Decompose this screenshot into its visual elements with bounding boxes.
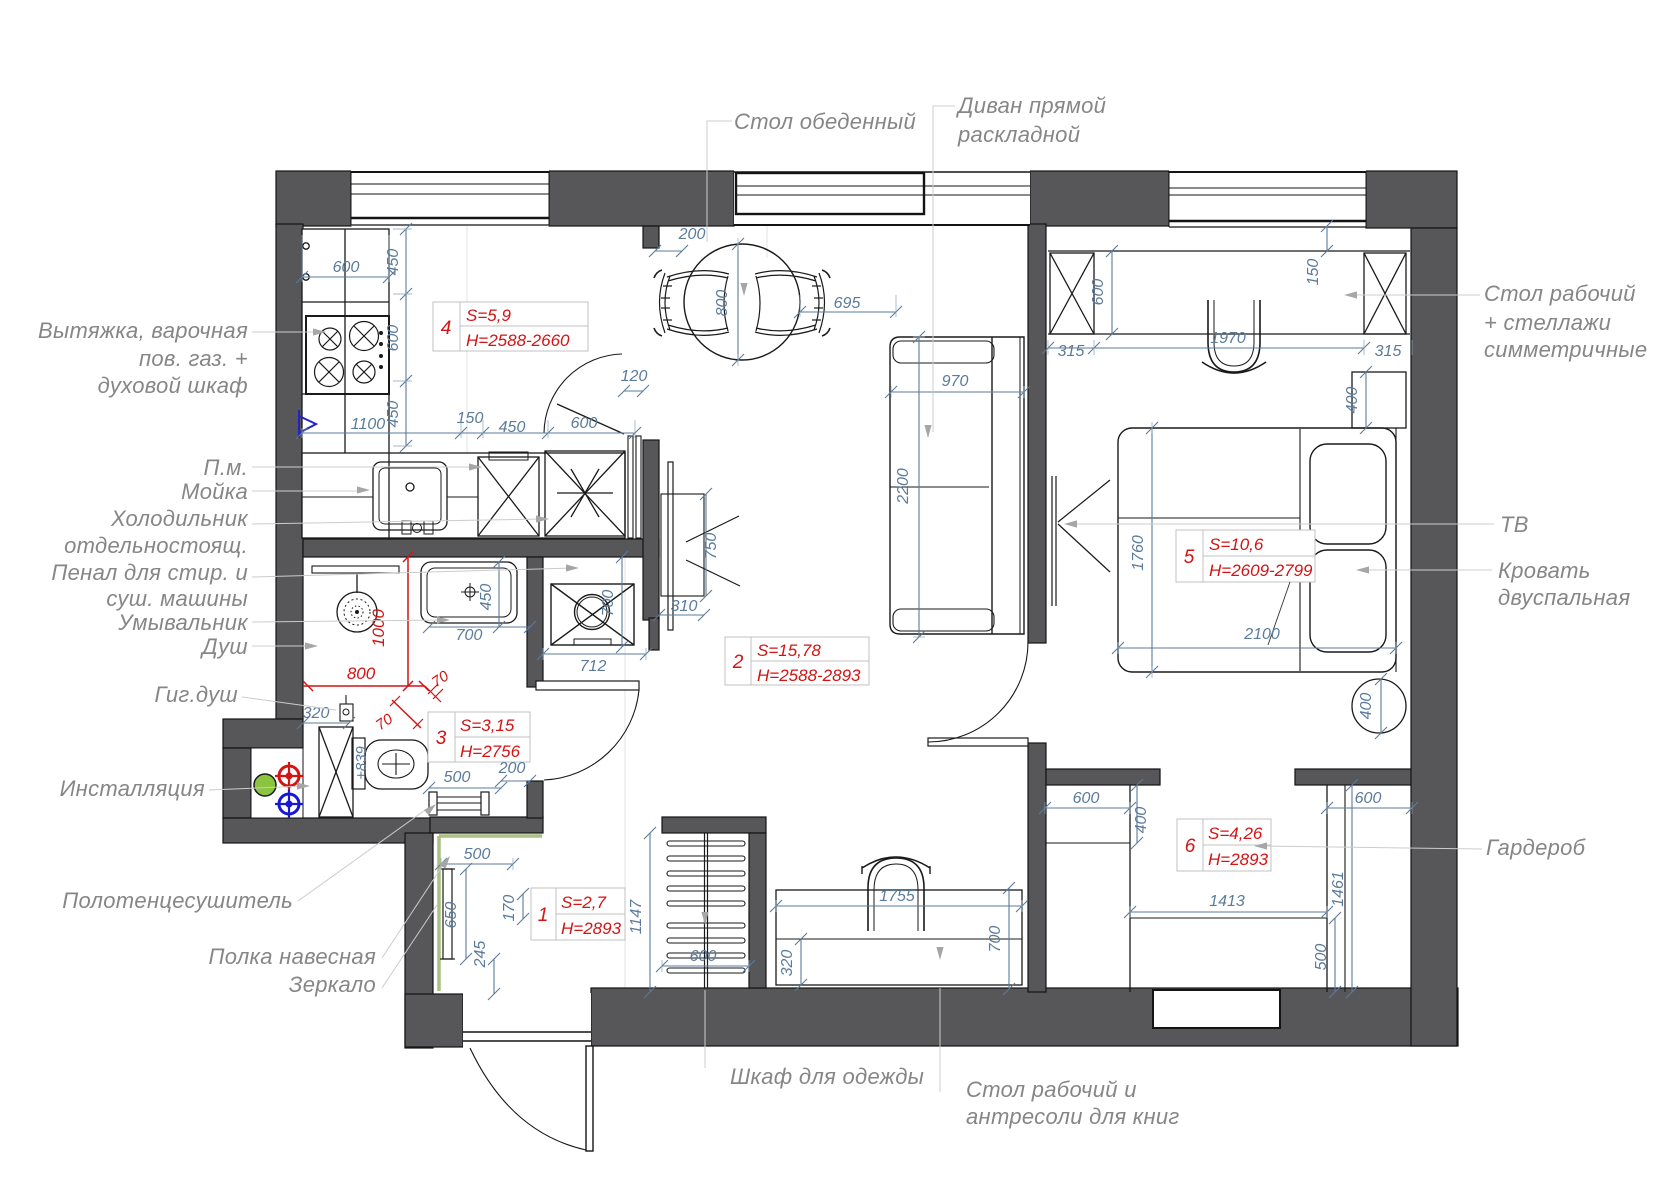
svg-text:S=10,6: S=10,6 — [1209, 535, 1264, 554]
svg-text:970: 970 — [942, 373, 969, 390]
svg-text:315: 315 — [1375, 343, 1402, 360]
svg-text:200: 200 — [678, 226, 706, 243]
svg-text:Стол обеденный: Стол обеденный — [734, 109, 916, 134]
svg-text:500: 500 — [444, 769, 471, 786]
svg-text:1413: 1413 — [1209, 893, 1245, 910]
svg-text:S=2,7: S=2,7 — [561, 893, 606, 912]
svg-text:2200: 2200 — [895, 468, 912, 505]
svg-text:245: 245 — [472, 941, 489, 969]
svg-text:650: 650 — [443, 902, 460, 929]
svg-text:3: 3 — [436, 728, 447, 749]
svg-text:700: 700 — [600, 590, 617, 617]
svg-text:170: 170 — [501, 895, 518, 922]
svg-text:Душ: Душ — [199, 634, 248, 659]
svg-text:Зеркало: Зеркало — [289, 972, 376, 997]
svg-text:6: 6 — [1185, 836, 1196, 857]
svg-text:H=2588-2660: H=2588-2660 — [466, 331, 570, 350]
svg-text:500: 500 — [464, 846, 491, 863]
svg-text:1970: 1970 — [1210, 330, 1246, 347]
svg-text:500: 500 — [1313, 944, 1330, 971]
svg-text:150: 150 — [457, 410, 484, 427]
svg-text:Стол рабочий и: Стол рабочий и — [966, 1077, 1137, 1102]
svg-text:1000: 1000 — [369, 609, 388, 647]
svg-text:Кровать: Кровать — [1498, 558, 1591, 583]
svg-text:450: 450 — [385, 401, 402, 428]
svg-text:600: 600 — [333, 259, 360, 276]
svg-text:120: 120 — [621, 368, 648, 385]
svg-text:320: 320 — [779, 950, 796, 977]
svg-text:310: 310 — [671, 598, 698, 615]
svg-text:695: 695 — [834, 295, 861, 312]
svg-text:700: 700 — [987, 926, 1004, 953]
svg-text:S=15,78: S=15,78 — [757, 641, 821, 660]
svg-text:750: 750 — [703, 533, 720, 560]
svg-text:400: 400 — [1358, 693, 1375, 720]
svg-text:Гардероб: Гардероб — [1486, 835, 1587, 860]
svg-text:H=2588-2893: H=2588-2893 — [757, 666, 861, 685]
svg-text:Диван прямой: Диван прямой — [955, 93, 1106, 118]
svg-text:4: 4 — [441, 318, 452, 339]
svg-text:симметричные: симметричные — [1484, 337, 1647, 362]
svg-text:+ стеллажи: + стеллажи — [1484, 310, 1611, 335]
svg-text:пов. газ. +: пов. газ. + — [139, 346, 248, 371]
svg-text:раскладной: раскладной — [957, 122, 1080, 147]
svg-text:Инсталляция: Инсталляция — [60, 776, 205, 801]
svg-text:800: 800 — [714, 290, 731, 317]
svg-text:200: 200 — [498, 760, 526, 777]
svg-text:ТВ: ТВ — [1500, 512, 1529, 537]
svg-text:S=3,15: S=3,15 — [460, 716, 515, 735]
svg-text:800: 800 — [347, 664, 376, 683]
svg-text:600: 600 — [385, 325, 402, 352]
svg-text:Вытяжка, варочная: Вытяжка, варочная — [38, 318, 248, 343]
svg-text:Полка навесная: Полка навесная — [209, 944, 376, 969]
svg-text:Шкаф для одежды: Шкаф для одежды — [730, 1064, 924, 1089]
svg-text:H=2893: H=2893 — [1208, 850, 1269, 869]
svg-text:суш. машины: суш. машины — [106, 586, 248, 611]
svg-text:600: 600 — [1090, 279, 1107, 306]
svg-text:двуспальная: двуспальная — [1498, 585, 1630, 610]
svg-text:2: 2 — [732, 652, 744, 673]
svg-text:Стол рабочий: Стол рабочий — [1484, 281, 1636, 306]
svg-text:400: 400 — [1344, 387, 1361, 414]
svg-text:600: 600 — [690, 948, 717, 965]
svg-text:Полотенцесушитель: Полотенцесушитель — [62, 888, 293, 913]
svg-text:712: 712 — [580, 658, 607, 675]
svg-text:1100: 1100 — [351, 416, 386, 433]
svg-text:S=4,26: S=4,26 — [1208, 824, 1263, 843]
svg-text:600: 600 — [1073, 790, 1100, 807]
svg-text:450: 450 — [478, 584, 495, 611]
svg-text:5: 5 — [1184, 547, 1195, 568]
svg-text:антресоли для книг: антресоли для книг — [966, 1104, 1180, 1129]
svg-text:315: 315 — [1058, 343, 1085, 360]
svg-text:духовой шкаф: духовой шкаф — [98, 373, 248, 398]
svg-text:1461: 1461 — [1330, 871, 1347, 907]
svg-text:H=2609-2799: H=2609-2799 — [1209, 561, 1313, 580]
svg-text:Гиг.душ: Гиг.душ — [155, 682, 238, 707]
svg-text:Холодильник: Холодильник — [110, 506, 249, 531]
svg-text:2100: 2100 — [1243, 626, 1280, 643]
svg-text:600: 600 — [1355, 790, 1382, 807]
svg-text:400: 400 — [1133, 807, 1150, 834]
svg-text:600: 600 — [571, 415, 598, 432]
svg-text:+839: +839 — [353, 745, 370, 779]
svg-text:H=2756: H=2756 — [460, 742, 521, 761]
svg-text:отдельностоящ.: отдельностоящ. — [64, 533, 248, 558]
svg-text:1760: 1760 — [1130, 535, 1147, 571]
svg-text:150: 150 — [1305, 259, 1322, 286]
svg-text:1: 1 — [538, 905, 549, 926]
svg-text:1755: 1755 — [879, 888, 915, 905]
svg-text:450: 450 — [499, 419, 526, 436]
svg-text:П.м.: П.м. — [204, 455, 248, 480]
svg-text:450: 450 — [385, 249, 402, 276]
svg-text:Мойка: Мойка — [181, 479, 248, 504]
svg-text:Пенал для стир. и: Пенал для стир. и — [51, 560, 248, 585]
svg-text:Умывальник: Умывальник — [117, 610, 249, 635]
svg-text:H=2893: H=2893 — [561, 919, 622, 938]
svg-text:700: 700 — [456, 627, 483, 644]
svg-text:1147: 1147 — [628, 899, 645, 935]
svg-text:S=5,9: S=5,9 — [466, 306, 511, 325]
